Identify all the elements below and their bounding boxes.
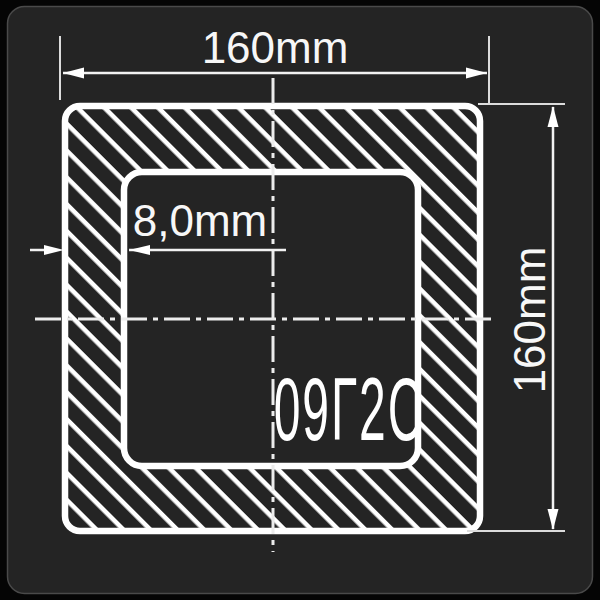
width-dimension-label: 160mm (202, 23, 349, 72)
wall-thickness-label: 8,0mm (133, 196, 267, 245)
height-dimension-label: 160mm (505, 247, 554, 394)
steel-grade-label: 09Г2С (274, 359, 425, 459)
tube-cross-section-drawing: 160mm 160mm 8,0mm 09Г2С (0, 0, 600, 600)
drawing-canvas: 160mm 160mm 8,0mm 09Г2С (0, 0, 600, 600)
